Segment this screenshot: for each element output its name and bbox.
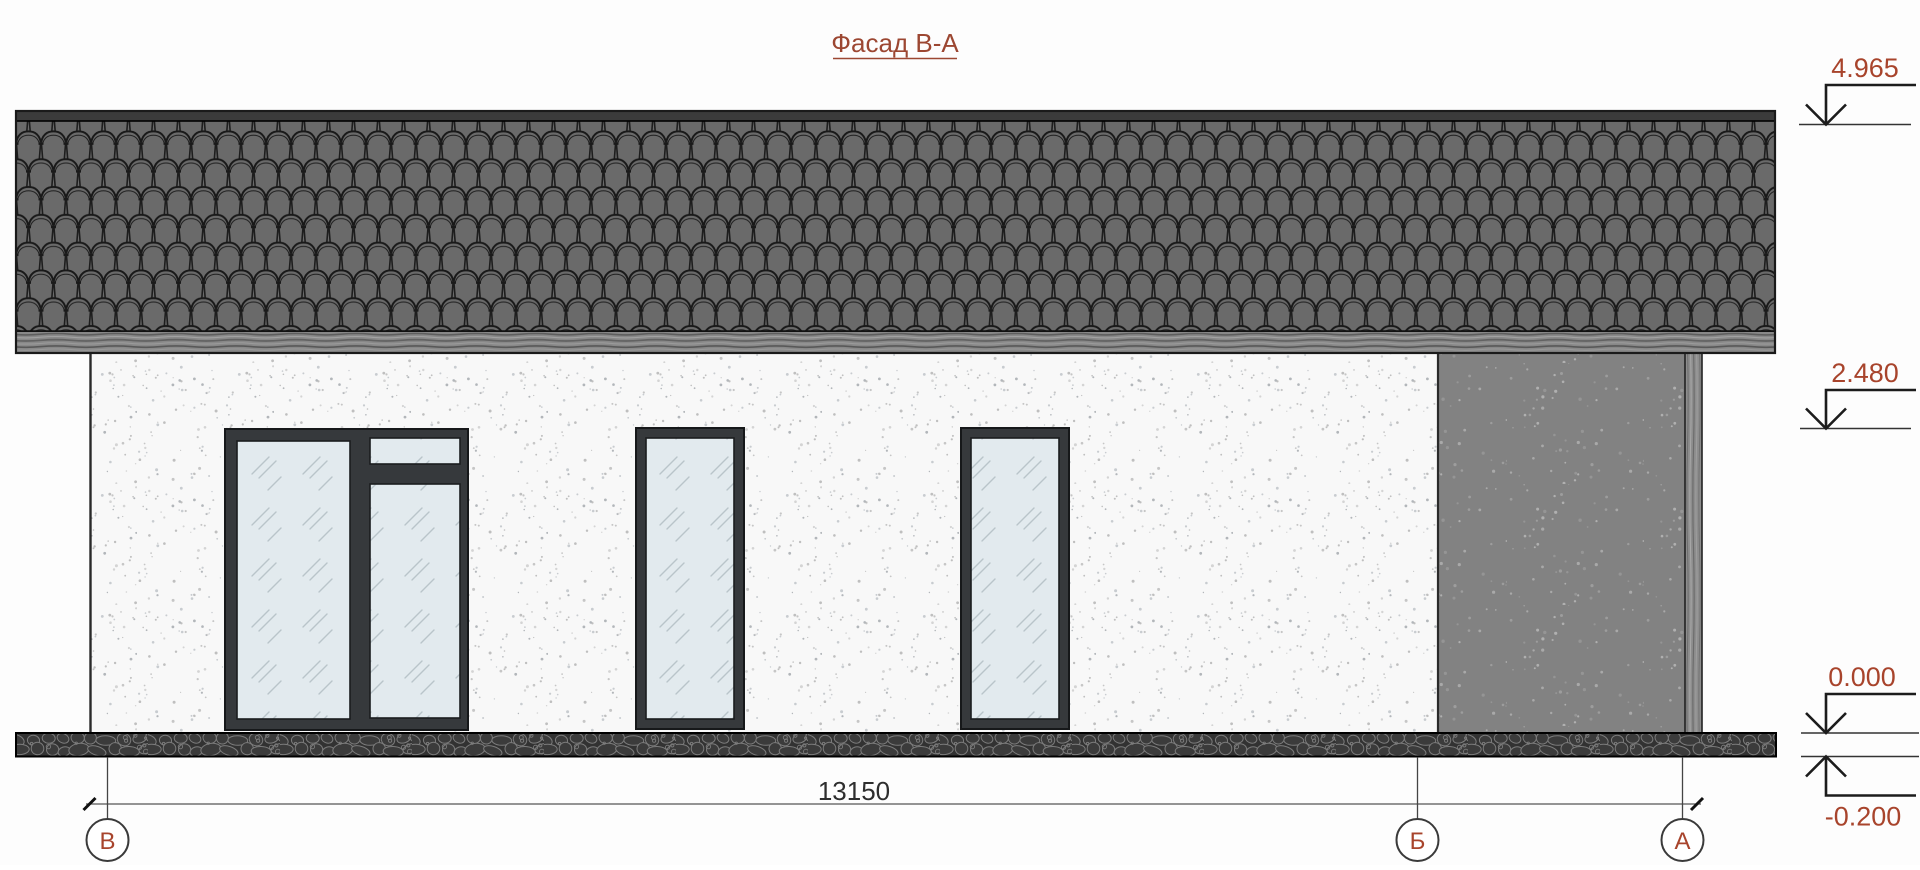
svg-text:0.000: 0.000 [1828, 662, 1896, 692]
svg-text:2.480: 2.480 [1831, 358, 1899, 388]
svg-text:Б: Б [1410, 828, 1426, 855]
svg-text:В: В [99, 828, 115, 855]
svg-text:Фасад В-А: Фасад В-А [831, 28, 959, 58]
svg-text:-0.200: -0.200 [1825, 802, 1902, 832]
svg-text:А: А [1674, 828, 1690, 855]
svg-text:4.965: 4.965 [1831, 53, 1899, 83]
svg-text:13150: 13150 [818, 776, 890, 806]
